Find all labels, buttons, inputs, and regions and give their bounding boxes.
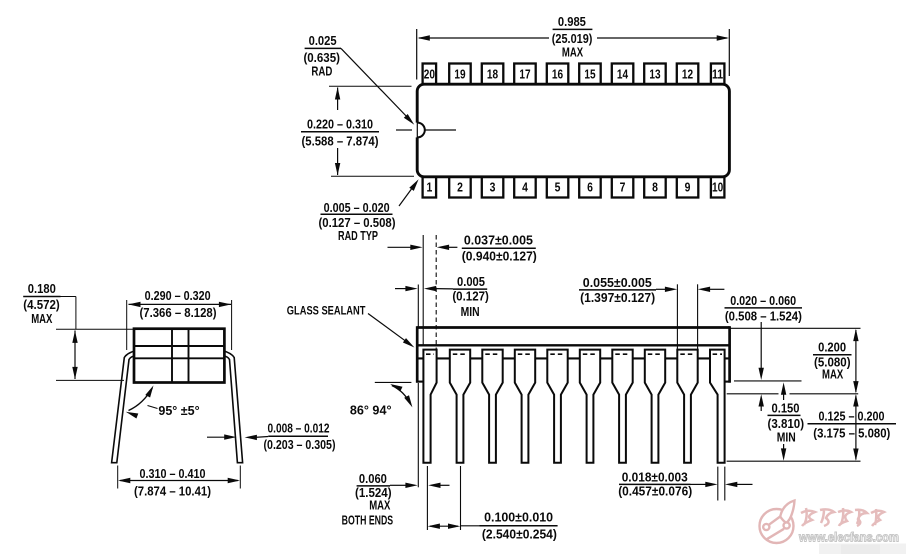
svg-text:0.025: 0.025 [309,34,337,48]
svg-text:MAX: MAX [369,499,391,513]
svg-text:(3.175 – 5.080): (3.175 – 5.080) [813,426,890,440]
svg-text:0.125 – 0.200: 0.125 – 0.200 [819,410,885,424]
svg-text:15: 15 [584,68,595,82]
svg-text:0.985: 0.985 [558,15,586,29]
svg-text:www.elecfans.com: www.elecfans.com [798,530,899,545]
svg-text:(5.588 – 7.874): (5.588 – 7.874) [302,134,379,148]
svg-text:GLASS SEALANT: GLASS SEALANT [287,306,366,318]
svg-text:0.200: 0.200 [818,340,846,354]
svg-text:19: 19 [454,68,465,82]
svg-text:17: 17 [519,68,530,82]
svg-text:18: 18 [487,68,498,82]
svg-text:(0.940±0.127): (0.940±0.127) [462,249,537,263]
svg-text:0.005 – 0.020: 0.005 – 0.020 [324,201,390,215]
svg-text:(0.457±0.076): (0.457±0.076) [618,485,692,499]
svg-text:0.310 – 0.410: 0.310 – 0.410 [140,467,206,481]
svg-text:12: 12 [682,68,693,82]
svg-text:0.008 – 0.012: 0.008 – 0.012 [268,421,330,435]
svg-text:86° 94°: 86° 94° [350,403,392,417]
svg-text:1: 1 [427,180,433,194]
svg-text:11: 11 [712,68,723,82]
svg-text:(0.635): (0.635) [303,51,340,65]
svg-text:MAX: MAX [822,367,844,381]
svg-text:(0.127): (0.127) [452,290,489,304]
svg-text:2: 2 [457,180,463,194]
svg-text:5: 5 [555,180,561,194]
svg-text:(7.366 – 8.128): (7.366 – 8.128) [140,306,217,320]
svg-text:(2.540±0.254): (2.540±0.254) [482,528,557,542]
svg-text:0.180: 0.180 [28,282,56,296]
svg-text:95° ±5°: 95° ±5° [158,404,199,418]
svg-text:(1.397±0.127): (1.397±0.127) [580,291,655,305]
svg-text:BOTH ENDS: BOTH ENDS [342,514,394,528]
svg-text:0.220 – 0.310: 0.220 – 0.310 [307,117,373,131]
svg-text:20: 20 [424,68,435,82]
svg-text:MIN: MIN [777,431,796,445]
svg-text:(0.127 – 0.508): (0.127 – 0.508) [319,216,396,230]
svg-text:4: 4 [522,180,528,194]
svg-text:0.005: 0.005 [457,275,485,289]
svg-text:0.150: 0.150 [772,401,800,415]
svg-text:0.020 – 0.060: 0.020 – 0.060 [730,294,796,308]
svg-text:3: 3 [490,180,496,194]
svg-text:MAX: MAX [31,312,53,326]
svg-text:0.055±0.005: 0.055±0.005 [583,276,652,290]
svg-text:(3.810): (3.810) [768,417,805,431]
svg-text:0.290 – 0.320: 0.290 – 0.320 [145,289,211,303]
svg-text:(0.508 – 1.524): (0.508 – 1.524) [725,309,802,323]
svg-text:0.100±0.010: 0.100±0.010 [484,511,553,525]
svg-text:0.037±0.005: 0.037±0.005 [464,233,533,247]
svg-text:16: 16 [552,68,563,82]
svg-text:(0.203 – 0.305): (0.203 – 0.305) [264,438,336,452]
svg-text:9: 9 [685,180,691,194]
svg-text:10: 10 [712,180,723,194]
svg-text:MAX: MAX [562,45,584,59]
svg-text:0.018±0.003: 0.018±0.003 [622,470,688,484]
svg-text:14: 14 [617,68,628,82]
svg-text:13: 13 [649,68,660,82]
svg-text:RAD TYP: RAD TYP [338,229,378,243]
svg-text:0.060: 0.060 [359,472,387,486]
svg-text:MIN: MIN [461,305,480,319]
svg-text:(7.874 – 10.41): (7.874 – 10.41) [134,484,211,498]
svg-text:6: 6 [587,180,593,194]
svg-text:(25.019): (25.019) [552,32,593,46]
svg-text:7: 7 [620,180,626,194]
svg-text:8: 8 [652,180,658,194]
svg-text:(4.572): (4.572) [23,298,60,312]
svg-text:RAD: RAD [311,65,332,79]
